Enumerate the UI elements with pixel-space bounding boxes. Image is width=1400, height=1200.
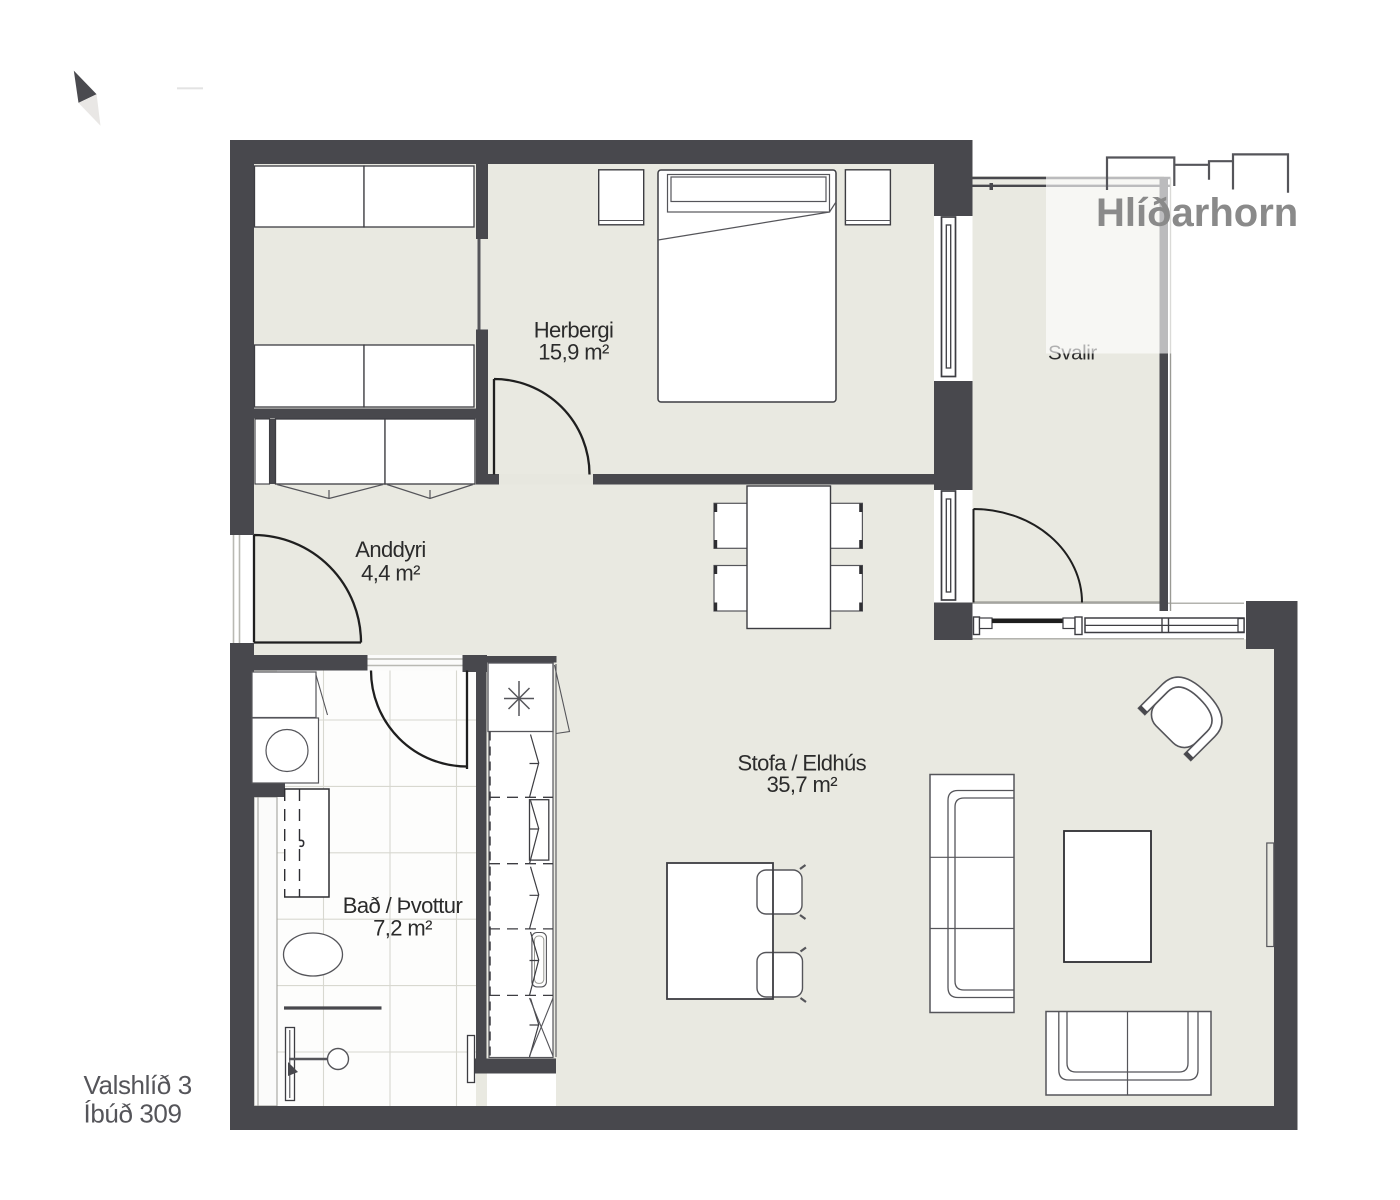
svg-text:15,9 m²: 15,9 m² [538,340,609,365]
svg-text:Anddyri: Anddyri [355,537,425,562]
svg-text:Íbúð 309: Íbúð 309 [84,1099,182,1129]
svg-text:Hlíðarhorn: Hlíðarhorn [1096,191,1298,235]
svg-text:35,7 m²: 35,7 m² [767,772,838,797]
svg-text:Valshlíð 3: Valshlíð 3 [84,1070,192,1100]
svg-text:Bað / Þvottur: Bað / Þvottur [343,893,463,918]
svg-text:7,2 m²: 7,2 m² [373,916,432,941]
svg-text:4,4 m²: 4,4 m² [361,561,420,586]
